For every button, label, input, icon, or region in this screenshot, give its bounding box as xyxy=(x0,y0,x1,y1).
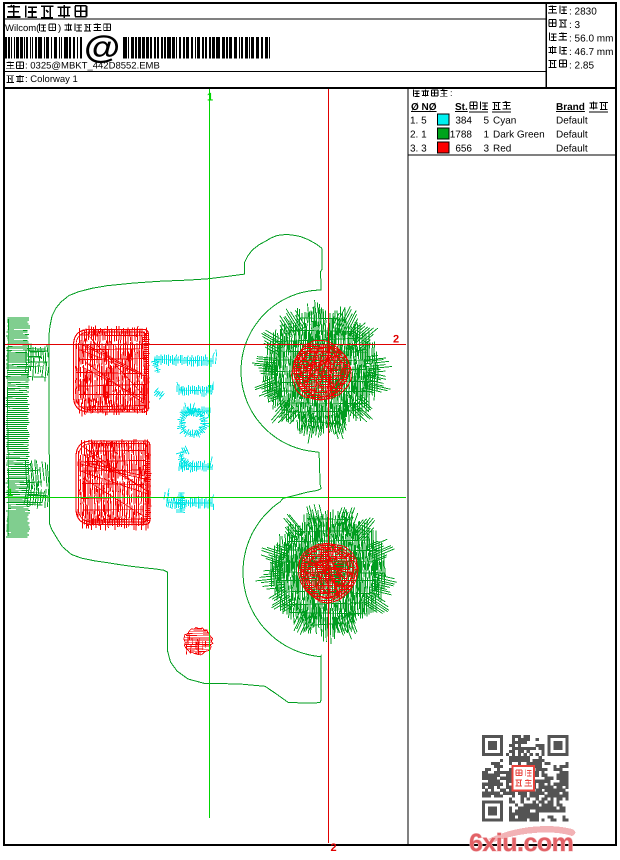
svg-text:Red: Red xyxy=(493,144,511,155)
svg-text:3: 3 xyxy=(483,144,489,155)
svg-text:Dark Green: Dark Green xyxy=(493,130,545,141)
svg-text:384: 384 xyxy=(455,116,472,127)
svg-text:): ) xyxy=(58,23,61,34)
svg-text:656: 656 xyxy=(455,144,472,155)
svg-text:1: 1 xyxy=(207,92,213,104)
svg-text:3. 3: 3. 3 xyxy=(410,144,427,155)
svg-text:: Colorway 1: : Colorway 1 xyxy=(25,74,78,85)
svg-text:Wilcom(: Wilcom( xyxy=(5,23,40,34)
svg-text:: 2.85: : 2.85 xyxy=(569,61,594,72)
svg-text:Default: Default xyxy=(556,130,588,141)
svg-text:Ø NØ: Ø NØ xyxy=(411,102,437,113)
svg-text:: 2830: : 2830 xyxy=(569,7,597,18)
svg-text:: 3: : 3 xyxy=(569,20,581,31)
svg-text:: 0325@MBKT_442D8552.EMB: : 0325@MBKT_442D8552.EMB xyxy=(25,61,160,72)
svg-text:2: 2 xyxy=(331,842,337,854)
svg-text:1: 1 xyxy=(483,130,489,141)
svg-text:6xiu.com: 6xiu.com xyxy=(469,829,573,857)
svg-text:St.: St. xyxy=(455,102,468,113)
svg-text:Cyan: Cyan xyxy=(493,116,516,127)
svg-text:Brand: Brand xyxy=(556,102,585,113)
svg-text:Default: Default xyxy=(556,116,588,127)
svg-text:: 46.7 mm: : 46.7 mm xyxy=(569,47,613,58)
svg-text:1: 1 xyxy=(7,487,13,499)
svg-text:2: 2 xyxy=(393,334,399,346)
svg-text:Default: Default xyxy=(556,144,588,155)
svg-text:: 56.0 mm: : 56.0 mm xyxy=(569,34,613,45)
svg-text:1. 5: 1. 5 xyxy=(410,116,427,127)
svg-text:1788: 1788 xyxy=(450,130,473,141)
svg-text:5: 5 xyxy=(483,116,489,127)
svg-text::: : xyxy=(450,88,453,98)
svg-text:2. 1: 2. 1 xyxy=(410,130,427,141)
